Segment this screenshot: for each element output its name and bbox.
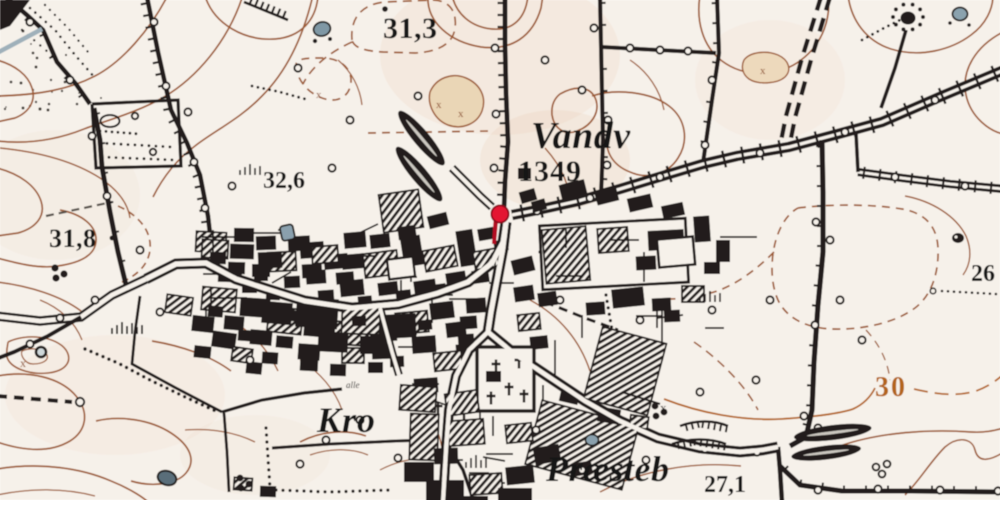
svg-text:32,6: 32,6 — [263, 168, 305, 194]
svg-text:Vandv: Vandv — [531, 115, 631, 157]
svg-text:alle: alle — [346, 380, 360, 390]
svg-text:x: x — [436, 99, 442, 111]
svg-text:30: 30 — [875, 372, 907, 403]
svg-text:x: x — [458, 108, 464, 120]
svg-text:31,8: 31,8 — [49, 224, 97, 253]
svg-text:27,1: 27,1 — [704, 472, 746, 498]
svg-text:x: x — [20, 356, 26, 370]
svg-text:x: x — [316, 89, 322, 101]
svg-text:31,3: 31,3 — [383, 12, 438, 45]
svg-text:26: 26 — [971, 261, 995, 287]
svg-text:Kro: Kro — [316, 400, 376, 440]
svg-text:Præsteb: Præsteb — [545, 449, 670, 489]
svg-text:x: x — [760, 65, 766, 77]
svg-text:1349: 1349 — [518, 155, 582, 188]
